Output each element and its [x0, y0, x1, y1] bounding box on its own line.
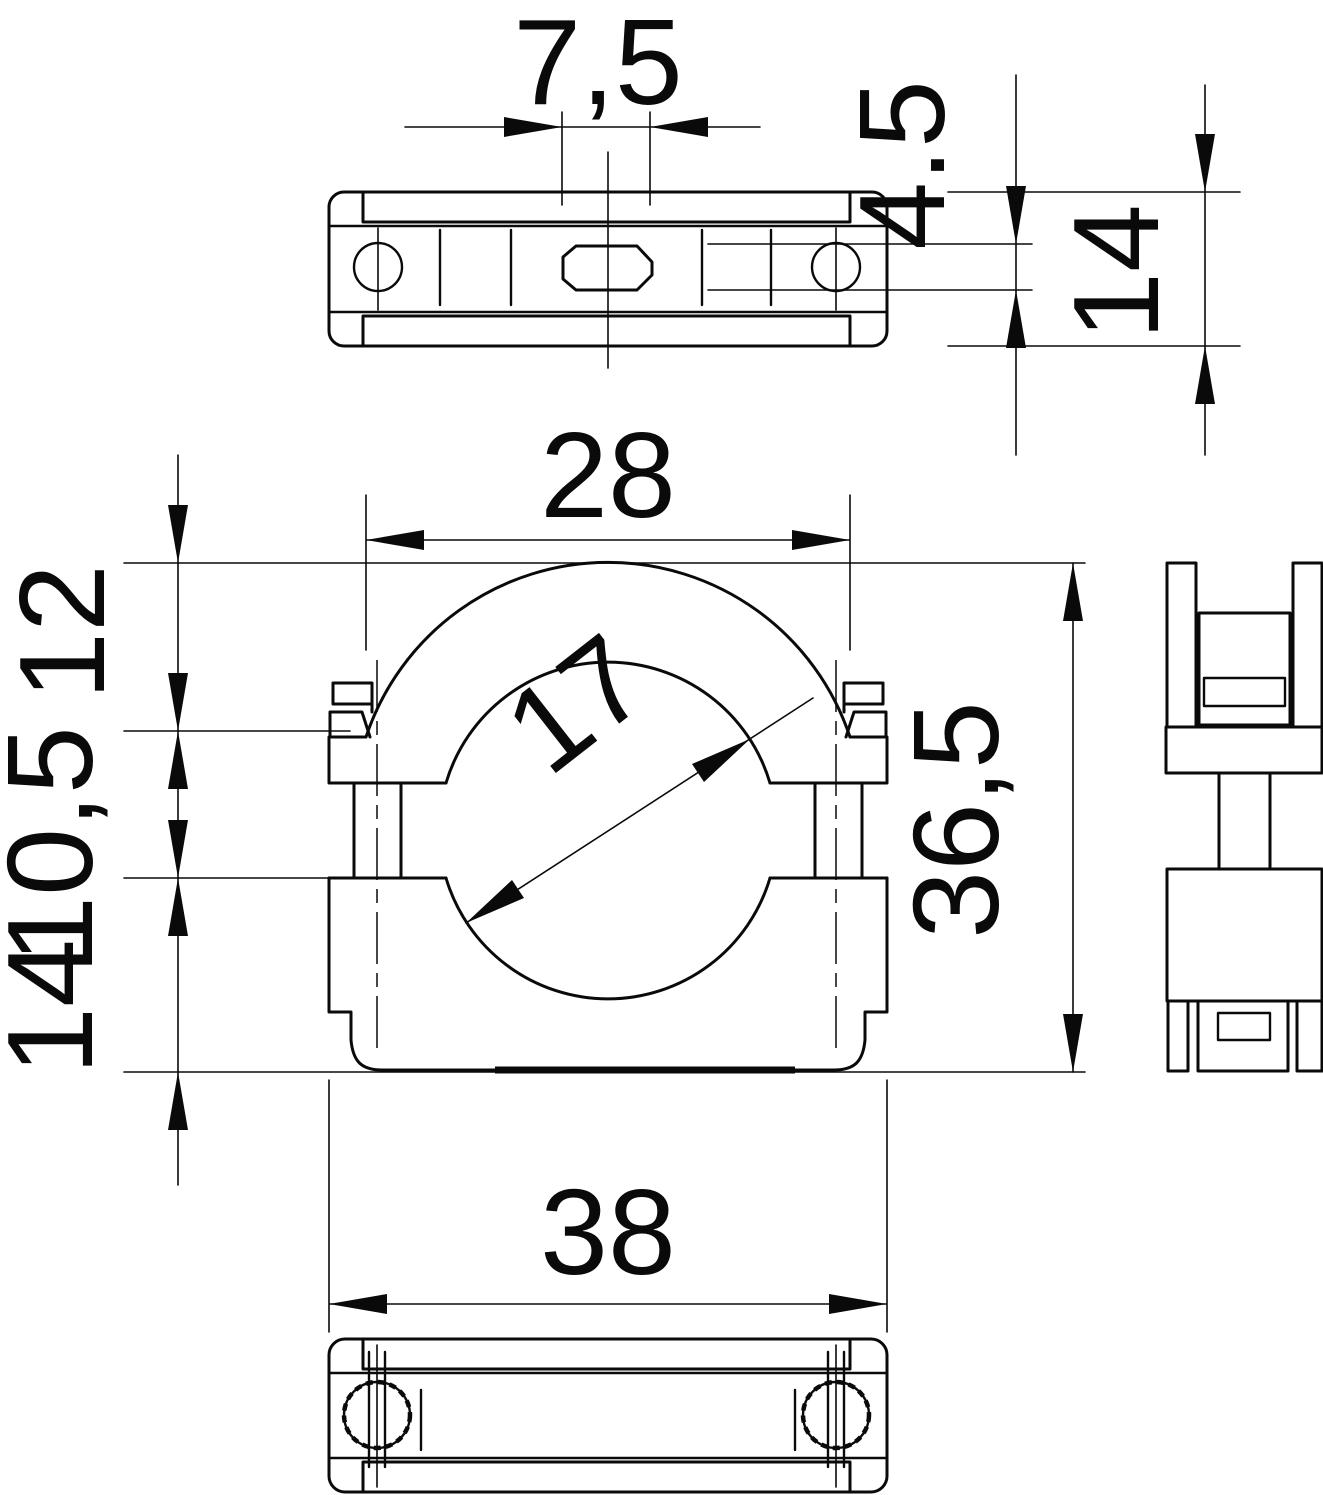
top-view-upper-band: [363, 192, 850, 222]
side-view: [1166, 563, 1322, 1071]
dimension-upper-body-width: 28: [366, 407, 850, 650]
dimension-mounting-hole: 4.5: [708, 75, 1032, 455]
top-view-lower-band: [363, 316, 850, 346]
dim-label-overall-height: 36,5: [888, 701, 1024, 938]
side-top-bar-left: [1167, 563, 1196, 727]
dimension-bore-diameter: 17: [466, 609, 813, 923]
bore-lower-arc: [446, 878, 770, 999]
technical-drawing: 7,5 4.5 14: [0, 0, 1323, 1495]
dimension-slot-width: 7,5: [405, 0, 760, 205]
lower-half-outline: [329, 878, 887, 1070]
bottom-view: [329, 1339, 887, 1492]
top-view-feature-edges: [440, 230, 771, 305]
top-view: 7,5 4.5 14: [329, 0, 1240, 455]
dimension-chain-left: 12 10,5 14: [0, 455, 350, 1185]
side-flange-band: [1166, 727, 1322, 773]
dim-label-depth: 14: [1048, 204, 1184, 340]
side-top-bar-right: [1293, 563, 1322, 727]
front-view: 28 12 10,5 14 17 36,5: [0, 407, 1085, 1332]
bottom-centerlines: [377, 1345, 836, 1487]
screw-centerlines: [378, 228, 836, 310]
dim-label-bore-diameter: 17: [481, 609, 672, 800]
side-lower-block: [1167, 869, 1322, 1001]
dim-label-lower-section-height: 14: [0, 939, 118, 1075]
drawing-canvas: 7,5 4.5 14: [0, 0, 1323, 1495]
latch-tab-right: [844, 683, 883, 704]
dimension-overall-height: 36,5: [888, 563, 1083, 1072]
dim-label-slot-width: 7,5: [513, 0, 683, 130]
dimension-overall-width: 38: [329, 1080, 887, 1332]
dim-label-mounting-hole: 4.5: [834, 80, 970, 250]
dim-label-overall-width: 38: [540, 1164, 676, 1300]
latch-tab-left: [333, 683, 372, 704]
side-link: [1219, 773, 1270, 869]
dim-label-upper-body-width: 28: [540, 407, 676, 543]
dim-label-gap-height: 10,5: [0, 726, 118, 963]
dimension-depth: 14: [948, 85, 1240, 455]
side-upper-block: [1199, 613, 1290, 725]
dim-label-upper-section-height: 12: [0, 564, 130, 700]
